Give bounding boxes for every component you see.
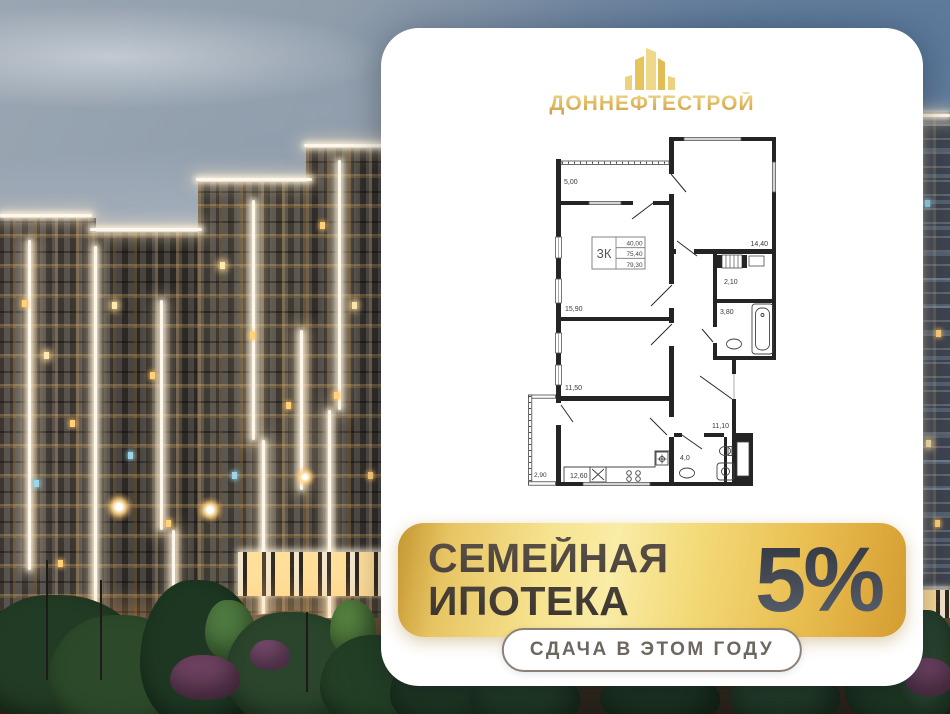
lit-window <box>250 332 255 339</box>
area-label-bathroom: 3,80 <box>720 309 734 316</box>
facade-led-strip <box>28 240 31 570</box>
facade-led-strip <box>160 300 163 530</box>
lit-window <box>334 392 339 399</box>
promo-card: ДОННЕФТЕСТРОЙ <box>381 28 923 686</box>
area-label-living-room: 15,90 <box>565 306 583 313</box>
lit-window <box>352 302 357 309</box>
lit-window <box>926 440 931 447</box>
lit-window <box>128 452 133 459</box>
area-label-kitchen: 12,60 <box>570 473 588 480</box>
balcony-railings <box>529 161 669 485</box>
vent-shaft <box>737 442 749 476</box>
lit-window <box>220 262 225 269</box>
lit-window <box>70 420 75 427</box>
area-total: 79,30 <box>627 262 643 269</box>
offer-title-line2: ИПОТЕКА <box>428 580 669 623</box>
lit-window <box>368 472 373 479</box>
lit-window <box>232 472 237 479</box>
offer-rate: 5% <box>755 534 906 626</box>
lit-window <box>925 200 930 207</box>
street-lamp-pole <box>100 580 102 680</box>
lit-window <box>935 520 940 527</box>
roof-led-strip <box>0 214 92 217</box>
lit-window <box>936 330 941 337</box>
delivery-badge: СДАЧА В ЭТОМ ГОДУ <box>502 628 802 672</box>
offer-title: СЕМЕЙНАЯ ИПОТЕКА <box>398 537 669 623</box>
street-lamp-pole <box>306 612 308 692</box>
area-label-bedroom-right: 14,40 <box>750 241 768 248</box>
area-label-wc: 4,0 <box>680 455 690 462</box>
floor-plan: 3К 40,00 75,40 79,30 5,00 14,40 15,90 2,… <box>528 137 778 489</box>
area-label-bedroom-left: 11,50 <box>565 385 582 392</box>
street-lamp-glow <box>104 492 134 522</box>
lit-window <box>320 222 325 229</box>
facade-led-strip <box>338 160 341 410</box>
lit-window <box>112 302 117 309</box>
door-swings <box>561 174 732 449</box>
lit-window <box>34 480 39 487</box>
bush-purple <box>170 655 240 700</box>
offer-banner: СЕМЕЙНАЯ ИПОТЕКА 5% <box>398 523 906 637</box>
lit-window <box>166 520 171 527</box>
unit-type-label: 3К <box>597 246 612 261</box>
delivery-badge-text: СДАЧА В ЭТОМ ГОДУ <box>530 639 774 661</box>
street-lamp-glow <box>294 466 316 488</box>
area-main: 75,40 <box>627 251 643 258</box>
railing-ticks <box>530 163 669 484</box>
area-label-loggia-bottom: 2,90 <box>534 472 547 479</box>
lit-window <box>22 300 27 307</box>
area-label-wardrobe: 2,10 <box>724 279 738 286</box>
street-lamp-pole <box>46 560 48 680</box>
unit-info-table: 3К 40,00 75,40 79,30 <box>592 237 645 269</box>
developer-logo: ДОННЕФТЕСТРОЙ <box>381 46 923 116</box>
logo-building-icon <box>620 46 684 90</box>
area-label-loggia-top: 5,00 <box>564 179 578 186</box>
logo-wordmark: ДОННЕФТЕСТРОЙ <box>549 92 754 116</box>
lit-window <box>286 402 291 409</box>
real-estate-ad: ДОННЕФТЕСТРОЙ <box>0 0 950 714</box>
street-lamp-glow <box>196 496 224 524</box>
roof-led-strip <box>90 228 202 231</box>
offer-title-line1: СЕМЕЙНАЯ <box>428 537 669 580</box>
roof-led-strip <box>196 178 312 181</box>
window-midlines <box>559 139 775 484</box>
lit-window <box>150 372 155 379</box>
area-living: 40,00 <box>627 240 643 247</box>
area-label-hallway: 11,10 <box>712 423 729 430</box>
facade-led-strip <box>252 200 255 440</box>
lit-window <box>44 352 49 359</box>
bush-purple <box>250 640 290 670</box>
